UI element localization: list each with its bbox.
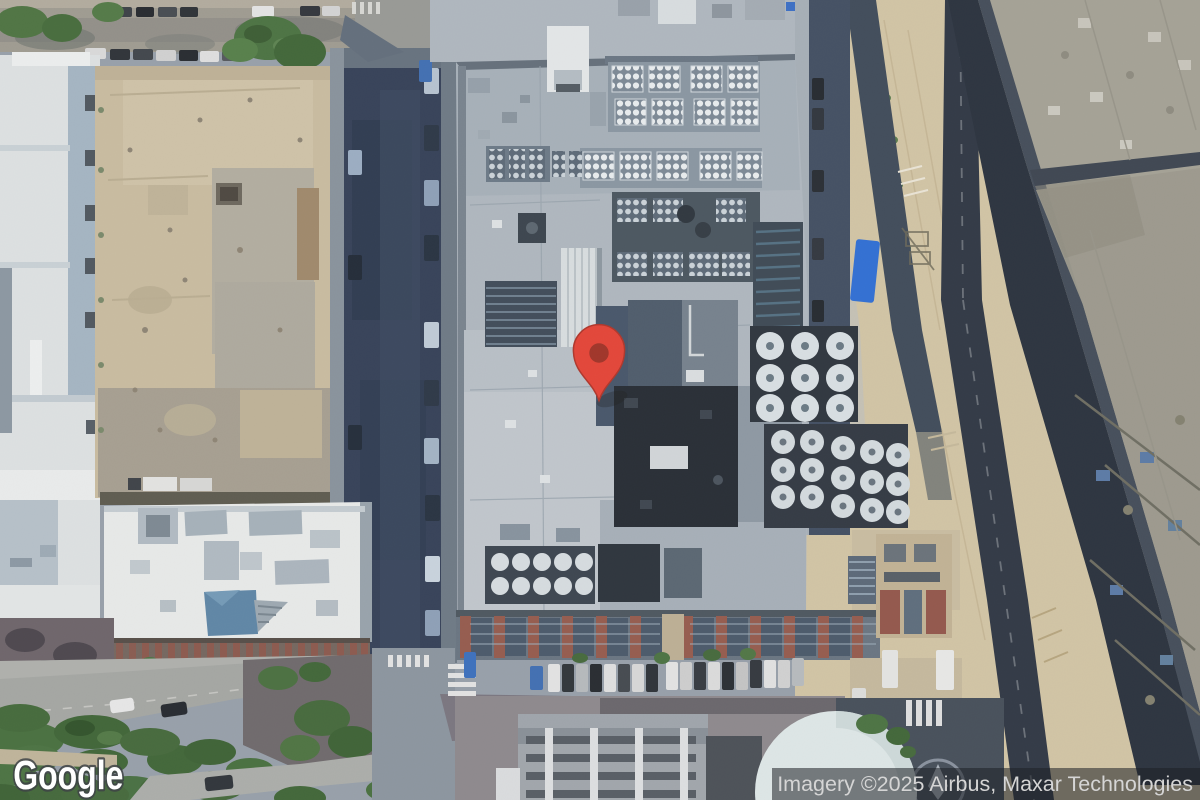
svg-text:Google: Google xyxy=(13,752,123,798)
svg-text:Imagery ©2025 Airbus, Maxar Te: Imagery ©2025 Airbus, Maxar Technologies xyxy=(777,772,1193,796)
